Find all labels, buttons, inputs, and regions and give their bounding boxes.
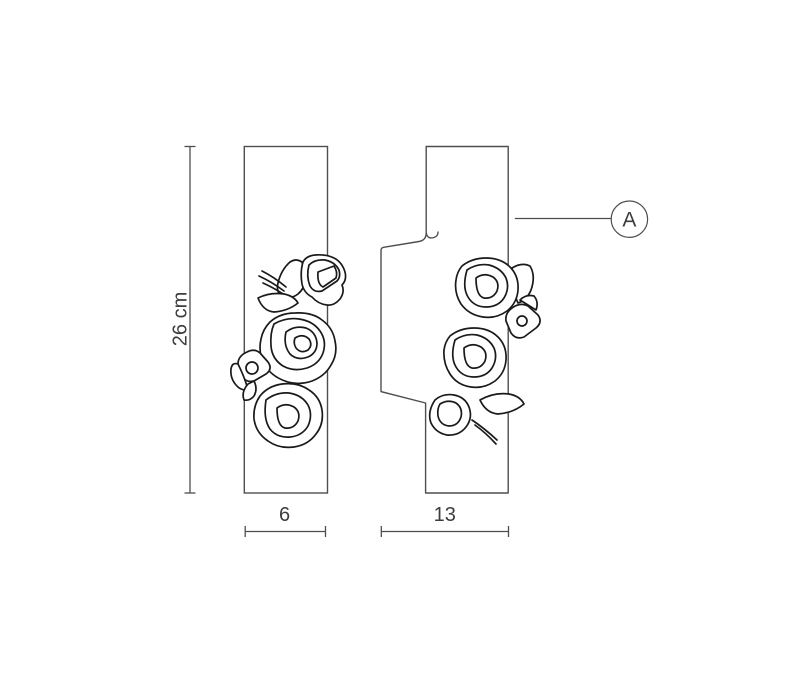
svg-text:6: 6 — [279, 504, 290, 526]
svg-text:13: 13 — [434, 504, 456, 526]
svg-text:A: A — [622, 209, 636, 232]
svg-text:26 cm: 26 cm — [169, 292, 191, 346]
